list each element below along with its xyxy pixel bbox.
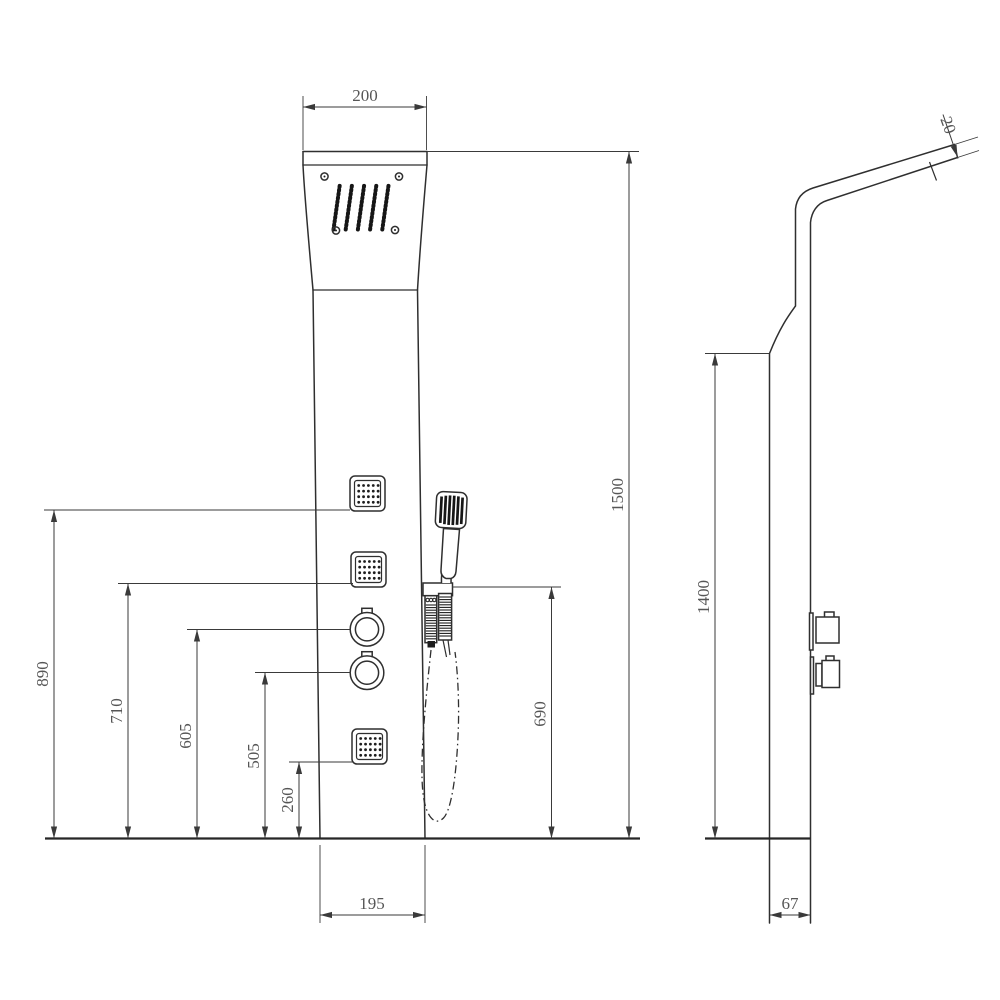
control-knob-2 xyxy=(350,652,384,690)
panel-body-side xyxy=(770,145,958,924)
hand-shower-head xyxy=(435,491,467,529)
dim-label-1500: 1500 xyxy=(608,478,627,512)
dim-arm-thickness: 20 xyxy=(936,114,979,159)
hose-connector-right xyxy=(439,594,452,658)
body-jet-1 xyxy=(350,476,385,511)
dim-label-505: 505 xyxy=(244,743,263,769)
dim-head-width: 200 xyxy=(303,86,427,150)
dim-handshower-height: 690 xyxy=(452,587,561,839)
dimensions: 200 1500 690 890 710 xyxy=(33,86,979,923)
dim-side-panel-depth: 67 xyxy=(770,894,811,915)
dim-knob-top-height: 605 xyxy=(176,630,351,839)
dim-knob-bottom-height: 505 xyxy=(244,673,351,839)
dim-label-260: 260 xyxy=(278,787,297,813)
body-jet-2 xyxy=(351,552,386,587)
dim-label-890: 890 xyxy=(33,661,52,687)
rain-shower-head xyxy=(303,152,427,291)
spray-nozzle-rows xyxy=(334,184,389,230)
dim-label-20: 20 xyxy=(936,114,960,136)
dim-label-690: 690 xyxy=(531,701,550,727)
control-knob-1 xyxy=(350,608,384,646)
front-view xyxy=(303,152,467,839)
dim-jet-top-height: 890 xyxy=(33,510,350,839)
panel-body-front xyxy=(313,290,425,839)
side-knob-1 xyxy=(810,612,840,650)
dim-label-605: 605 xyxy=(176,723,195,749)
hose-connector-left xyxy=(425,596,437,648)
dim-label-1400: 1400 xyxy=(694,580,713,614)
dim-jet-mid-height: 710 xyxy=(107,584,353,839)
dim-label-200: 200 xyxy=(352,86,378,105)
hand-shower xyxy=(422,491,467,821)
body-jet-3 xyxy=(352,729,387,764)
dim-label-710: 710 xyxy=(107,698,126,724)
side-view xyxy=(770,145,958,924)
dim-jet-bottom-height: 260 xyxy=(278,762,353,839)
shower-panel-dimension-drawing: 200 1500 690 890 710 xyxy=(0,0,1000,1000)
shower-hose xyxy=(422,650,459,821)
dim-side-panel-height: 1400 xyxy=(694,354,770,839)
dim-label-195: 195 xyxy=(359,894,385,913)
technical-drawing-page: 200 1500 690 890 710 xyxy=(0,0,1000,1000)
dim-panel-bottom-width: 195 xyxy=(320,845,425,923)
dim-label-67: 67 xyxy=(782,894,800,913)
hand-shower-handle xyxy=(441,529,460,579)
side-knob-2 xyxy=(811,656,840,694)
